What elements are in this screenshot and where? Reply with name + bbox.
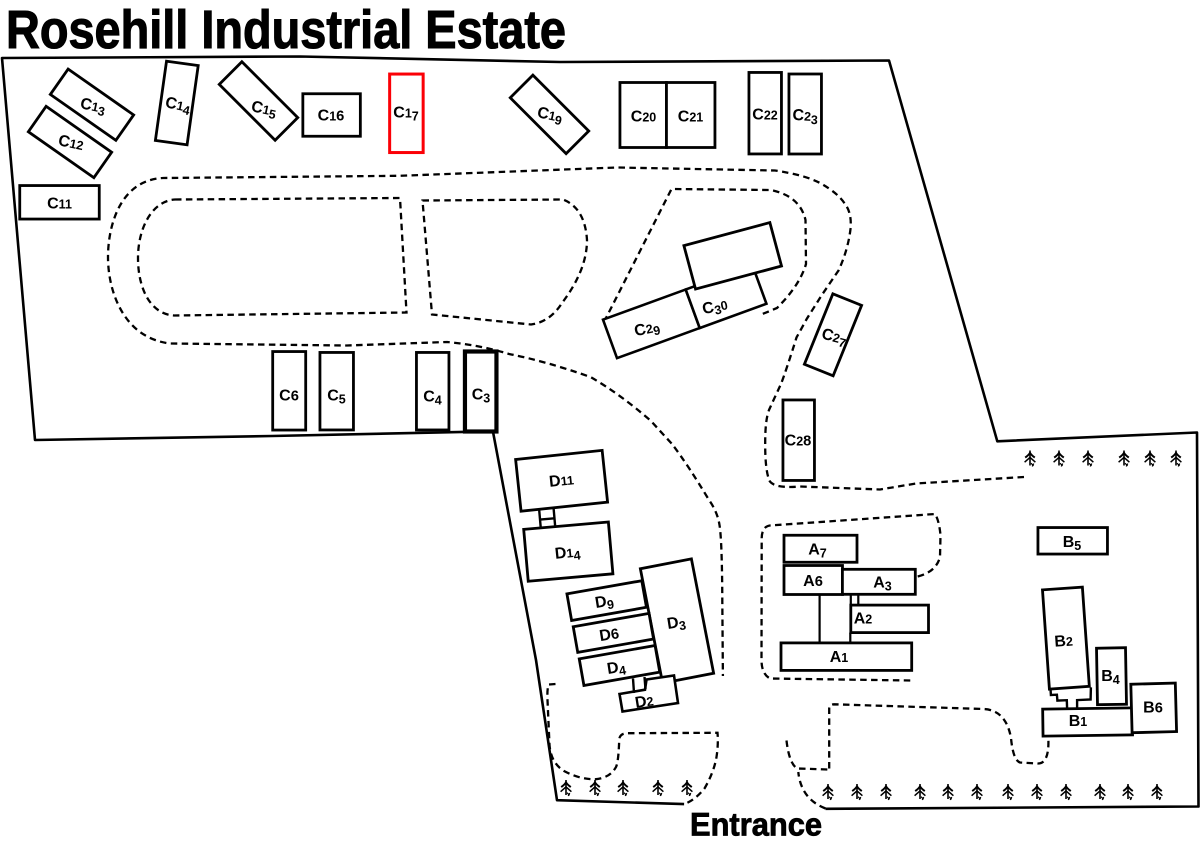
svg-text:C16: C16 — [318, 108, 345, 125]
svg-text:A2: A2 — [854, 611, 873, 628]
svg-text:A1: A1 — [830, 649, 849, 666]
svg-text:C22: C22 — [752, 107, 778, 124]
svg-text:C11: C11 — [47, 196, 72, 213]
svg-text:C21: C21 — [678, 109, 704, 126]
svg-text:B6: B6 — [1143, 700, 1163, 717]
svg-text:C6: C6 — [279, 388, 299, 405]
svg-text:D6: D6 — [598, 625, 620, 645]
svg-text:C28: C28 — [785, 433, 812, 450]
svg-text:C20: C20 — [631, 109, 657, 126]
svg-text:B2: B2 — [1054, 632, 1074, 650]
svg-text:Entrance: Entrance — [690, 807, 822, 838]
svg-text:A6: A6 — [803, 573, 823, 590]
svg-text:B1: B1 — [1069, 713, 1088, 730]
svg-text:Rosehill Industrial Estate: Rosehill Industrial Estate — [6, 0, 566, 60]
